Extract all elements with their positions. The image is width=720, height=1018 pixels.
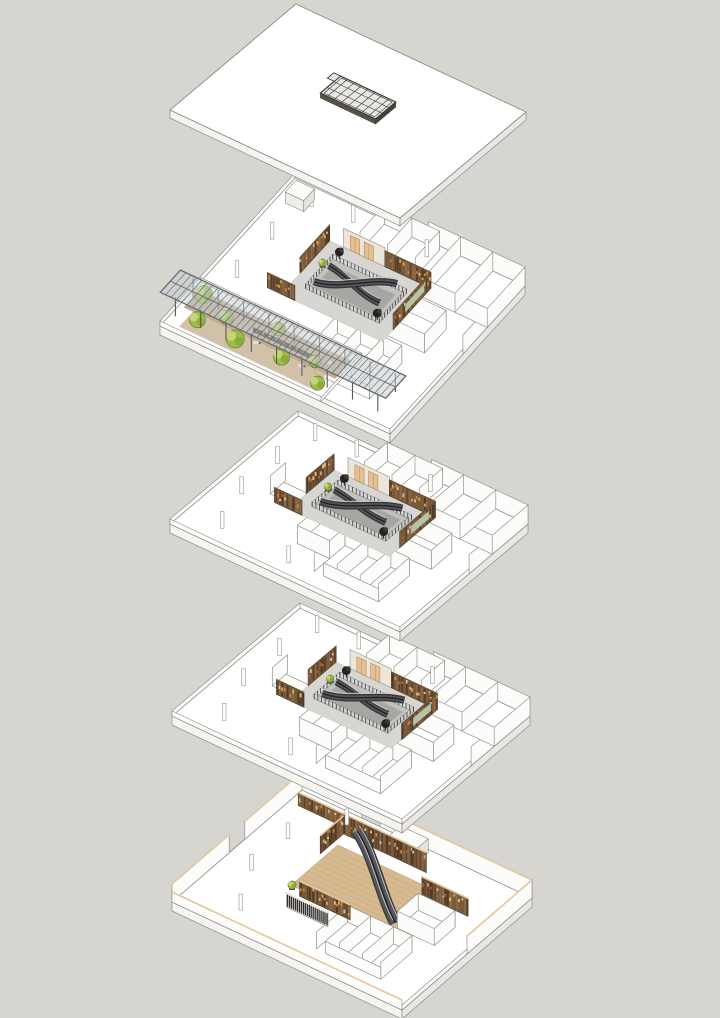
layer-mid-floor-2 <box>170 411 528 641</box>
exploded-axon-diagram <box>0 0 720 1018</box>
layer-roof <box>170 4 526 226</box>
layer-upper-floor <box>160 173 525 443</box>
scene-svg <box>0 0 720 1018</box>
layer-mid-floor-1 <box>172 603 530 833</box>
